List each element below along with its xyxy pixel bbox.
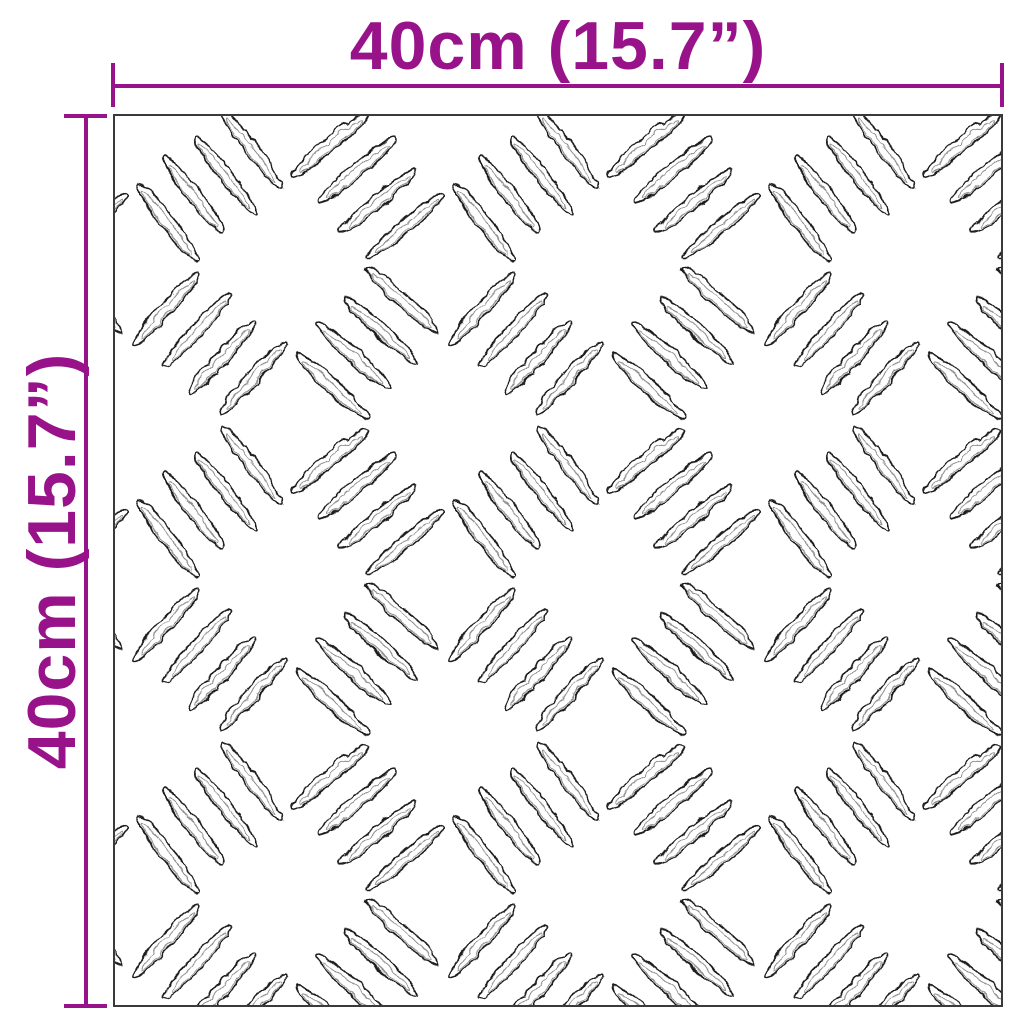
height-dimension-line	[84, 115, 88, 1006]
height-dimension-label-area: 40cm (15.7”)	[12, 115, 92, 1006]
height-dimension-tick-top	[64, 114, 107, 118]
height-dimension-tick-bottom	[64, 1004, 107, 1008]
width-dimension-label: 40cm (15.7”)	[113, 6, 1003, 86]
checker-plate-panel	[113, 114, 1003, 1007]
checker-plate-pattern	[115, 116, 1001, 1005]
width-dimension-tick-left	[111, 63, 115, 107]
height-dimension-label: 40cm (15.7”)	[12, 115, 92, 1006]
width-dimension-line	[113, 84, 1003, 88]
product-dimension-diagram: 40cm (15.7”) 40cm (15.7”)	[0, 0, 1024, 1024]
width-dimension-tick-right	[1000, 63, 1004, 107]
